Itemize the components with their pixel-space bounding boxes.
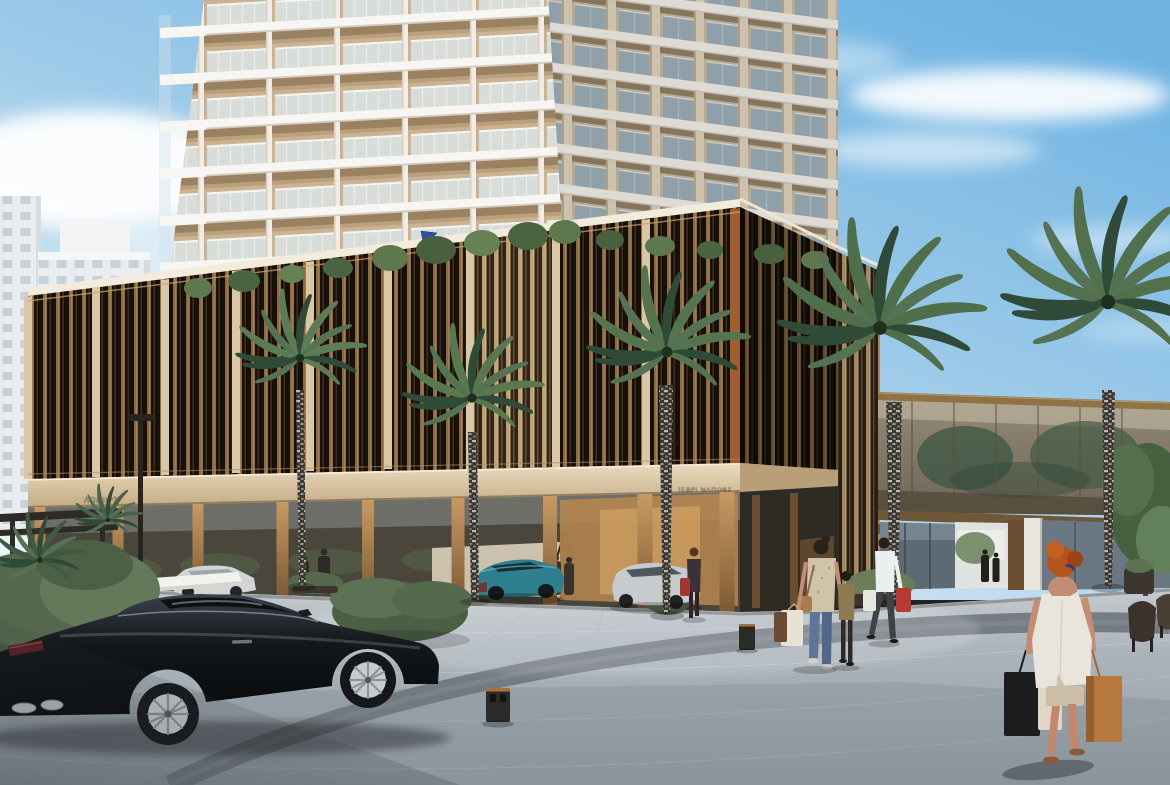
litter-bin-1 <box>482 688 514 728</box>
white-pillar <box>1024 518 1042 590</box>
lamp-head <box>128 414 154 421</box>
render-canvas: Daytime rendering of a luxury residentia… <box>0 0 1170 785</box>
entrance-planter <box>287 572 343 594</box>
architectural-render: Daytime rendering of a luxury residentia… <box>0 0 1170 785</box>
tower-balustrade-edge <box>159 15 171 285</box>
front-wheel <box>340 652 396 708</box>
louver-screen-tan-bay <box>470 230 556 469</box>
planter-pot-right <box>1124 559 1154 594</box>
